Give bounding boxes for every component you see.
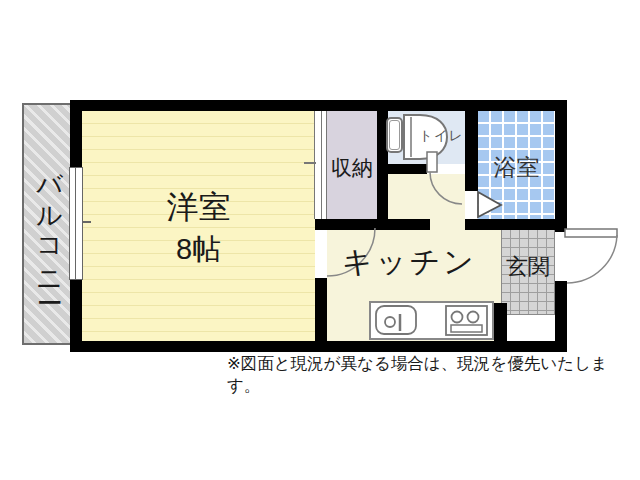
wall-kitchen-top	[315, 219, 430, 230]
closet-label: 収納	[327, 156, 377, 179]
western-room-size: 8帖	[82, 230, 315, 270]
floor-plan: バルコニー	[0, 0, 640, 480]
toilet-label: トイレ	[419, 129, 463, 144]
wall-genkan-stub	[494, 303, 507, 352]
balcony-label: バルコニー	[37, 155, 63, 293]
window-glazing-line	[75, 168, 76, 279]
western-room-label: 洋室	[82, 186, 315, 230]
entrance-step	[507, 315, 555, 341]
wall-bath-bottom	[465, 219, 567, 230]
entrance-label: 玄関	[501, 255, 555, 279]
sliding-door-icon	[314, 111, 327, 219]
sliding-door-tick	[304, 162, 316, 164]
wall-toilet-bottom	[388, 164, 427, 174]
sliding-door-track	[321, 111, 322, 219]
wall-room-kitchen	[315, 278, 327, 352]
front-door-leaf	[565, 229, 617, 237]
wall-right-lower	[555, 281, 567, 352]
wall-toilet-bath	[465, 111, 478, 191]
wall-top	[70, 100, 567, 111]
toilet-tank	[386, 117, 403, 153]
kitchen-label: キッチン	[342, 245, 477, 278]
disclaimer-note: ※図面と現況が異なる場合は、現況を優先いたします。	[227, 353, 640, 397]
toilet-tank-lid	[389, 120, 400, 150]
window-icon	[69, 167, 83, 280]
front-door-arc	[567, 235, 617, 283]
western-room-label-block: 洋室 8帖	[82, 186, 315, 270]
wall-right-upper	[555, 100, 567, 232]
bathroom-label: 浴室	[478, 155, 555, 180]
